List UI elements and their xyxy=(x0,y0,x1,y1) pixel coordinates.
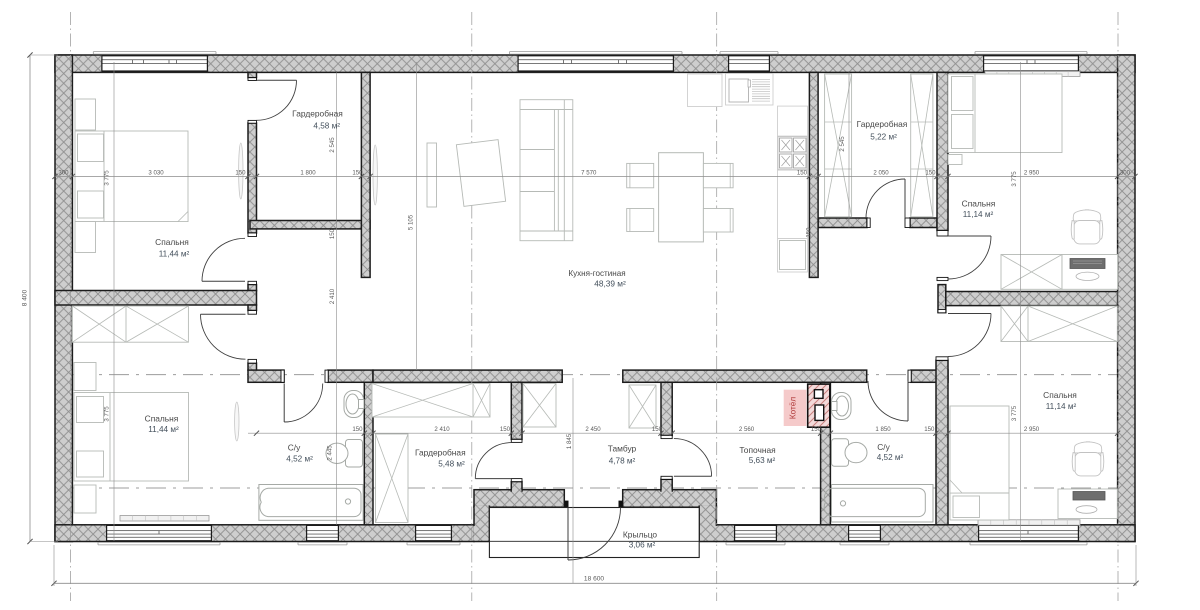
svg-text:Спальня: Спальня xyxy=(962,199,996,209)
svg-text:2 050: 2 050 xyxy=(873,169,889,176)
svg-text:Кухня-гостиная: Кухня-гостиная xyxy=(568,269,625,278)
svg-text:150: 150 xyxy=(806,227,813,238)
svg-text:150: 150 xyxy=(329,228,336,239)
svg-text:5,22 м²: 5,22 м² xyxy=(870,132,897,141)
svg-text:11,14 м²: 11,14 м² xyxy=(963,210,994,219)
svg-text:1 845: 1 845 xyxy=(566,433,573,449)
svg-text:11,14 м²: 11,14 м² xyxy=(1046,402,1077,411)
svg-text:Гардеробная: Гардеробная xyxy=(292,108,343,118)
svg-text:3 775: 3 775 xyxy=(104,170,111,186)
svg-text:18 600: 18 600 xyxy=(584,576,605,583)
svg-text:Котёл: Котёл xyxy=(789,397,798,419)
svg-text:3 775: 3 775 xyxy=(104,406,111,422)
svg-text:Топочная: Топочная xyxy=(739,445,775,455)
svg-text:4,52 м²: 4,52 м² xyxy=(286,454,313,463)
svg-text:150: 150 xyxy=(352,426,363,433)
svg-text:150: 150 xyxy=(924,426,935,433)
svg-text:11,44 м²: 11,44 м² xyxy=(148,425,179,434)
svg-text:150: 150 xyxy=(652,426,663,433)
svg-text:С/у: С/у xyxy=(877,442,890,452)
svg-text:150: 150 xyxy=(811,426,822,433)
svg-text:150: 150 xyxy=(235,169,246,176)
svg-text:1 850: 1 850 xyxy=(875,426,891,433)
svg-text:150: 150 xyxy=(352,169,363,176)
svg-text:2 545: 2 545 xyxy=(839,136,846,152)
svg-text:3 775: 3 775 xyxy=(1011,405,1018,421)
svg-text:7 570: 7 570 xyxy=(581,169,597,176)
svg-text:48,39 м²: 48,39 м² xyxy=(594,279,626,289)
svg-text:4,78 м²: 4,78 м² xyxy=(609,457,636,466)
svg-text:150: 150 xyxy=(500,426,511,433)
svg-text:Спальня: Спальня xyxy=(145,414,179,424)
svg-text:2 950: 2 950 xyxy=(1024,426,1040,433)
svg-text:2 950: 2 950 xyxy=(1024,169,1040,176)
svg-text:5 105: 5 105 xyxy=(407,214,414,230)
svg-text:Гардеробная: Гардеробная xyxy=(857,119,908,129)
svg-text:5,48 м²: 5,48 м² xyxy=(438,459,465,468)
svg-text:Гардеробная: Гардеробная xyxy=(415,448,466,458)
svg-text:150: 150 xyxy=(925,169,936,176)
svg-text:Спальня: Спальня xyxy=(155,237,189,247)
svg-text:11,44 м²: 11,44 м² xyxy=(159,250,190,259)
svg-text:4,52 м²: 4,52 м² xyxy=(877,453,904,462)
svg-text:150: 150 xyxy=(797,169,808,176)
svg-text:5,63 м²: 5,63 м² xyxy=(749,456,776,465)
svg-text:3,06 м²: 3,06 м² xyxy=(629,540,656,549)
svg-text:8 400: 8 400 xyxy=(22,289,29,306)
svg-text:300: 300 xyxy=(58,169,69,176)
svg-text:2 560: 2 560 xyxy=(739,426,755,433)
svg-text:Спальня: Спальня xyxy=(1043,390,1077,400)
svg-text:300: 300 xyxy=(1120,169,1131,176)
svg-text:Крыльцо: Крыльцо xyxy=(623,530,658,540)
svg-text:2 450: 2 450 xyxy=(585,426,601,433)
svg-text:2 445: 2 445 xyxy=(327,445,334,461)
svg-text:С/у: С/у xyxy=(288,443,301,453)
svg-text:2 410: 2 410 xyxy=(434,426,450,433)
svg-text:3 030: 3 030 xyxy=(148,169,164,176)
svg-text:3 775: 3 775 xyxy=(1011,171,1018,187)
svg-text:2 545: 2 545 xyxy=(329,137,336,153)
svg-text:Тамбур: Тамбур xyxy=(608,444,637,454)
svg-text:4,58 м²: 4,58 м² xyxy=(313,121,340,130)
svg-text:1 800: 1 800 xyxy=(300,169,316,176)
svg-text:2 410: 2 410 xyxy=(329,288,336,304)
